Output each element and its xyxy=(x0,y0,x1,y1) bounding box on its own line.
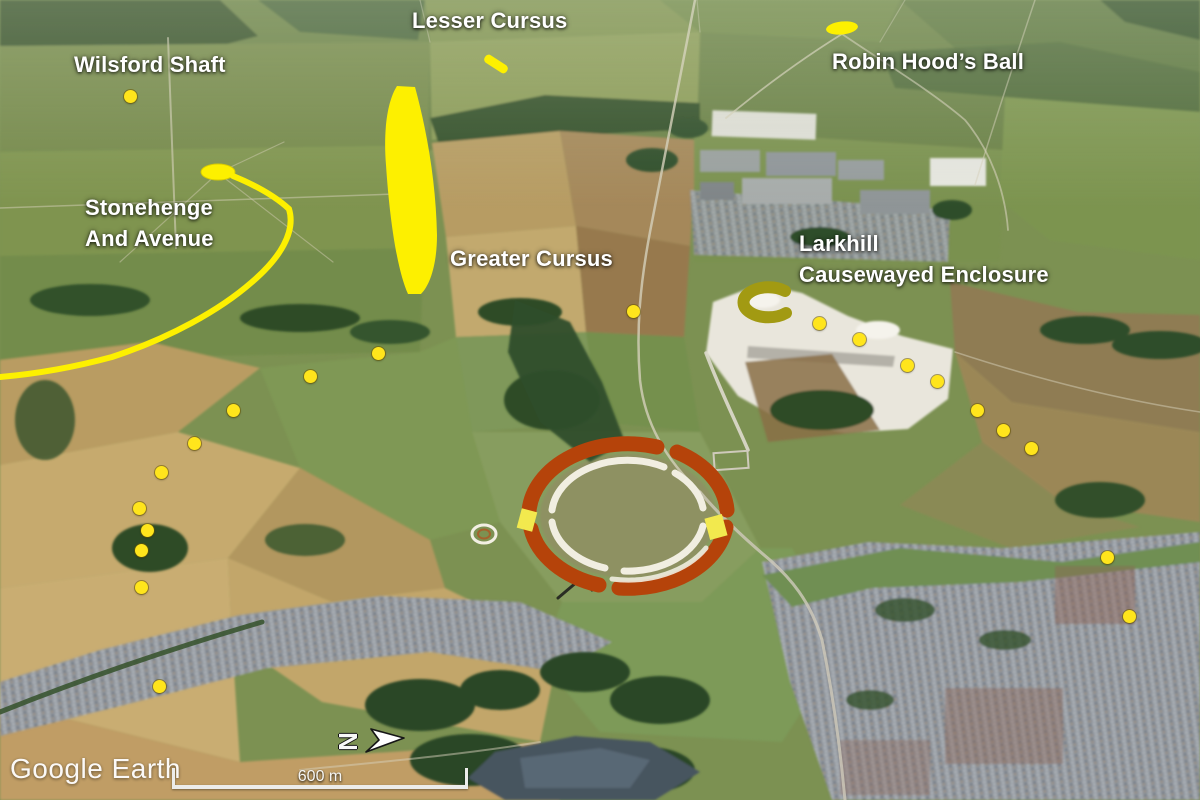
google-earth-logo: Google Earth xyxy=(10,753,181,785)
map-canvas[interactable]: .f-yellow{fill:var(--annotation-yellow);… xyxy=(0,0,1200,800)
site-marker-dot[interactable] xyxy=(627,305,640,318)
label-robin-hoods-ball: Robin Hood’s Ball xyxy=(832,46,1024,77)
site-marker-dot[interactable] xyxy=(153,680,166,693)
label-stonehenge-line2: And Avenue xyxy=(85,223,214,254)
site-marker-dot[interactable] xyxy=(188,437,201,450)
site-marker-dot[interactable] xyxy=(372,347,385,360)
site-marker-dot[interactable] xyxy=(155,466,168,479)
site-marker-dot[interactable] xyxy=(135,544,148,557)
site-marker-dot[interactable] xyxy=(997,424,1010,437)
label-larkhill-enclosure: Larkhill Causewayed Enclosure xyxy=(799,228,1049,290)
label-greater-cursus: Greater Cursus xyxy=(450,243,613,274)
label-wilsford-shaft: Wilsford Shaft xyxy=(74,49,226,80)
site-marker-dot[interactable] xyxy=(133,502,146,515)
scale-bar-label: 600 m xyxy=(175,768,465,785)
site-marker-dot[interactable] xyxy=(853,333,866,346)
site-marker-dot[interactable] xyxy=(1123,610,1136,623)
site-marker-dot[interactable] xyxy=(227,404,240,417)
label-larkhill-line1: Larkhill xyxy=(799,228,1049,259)
label-lesser-cursus: Lesser Cursus xyxy=(412,5,567,36)
site-marker-dot[interactable] xyxy=(971,404,984,417)
site-marker-dot[interactable] xyxy=(124,90,137,103)
site-marker-dot[interactable] xyxy=(901,359,914,372)
label-stonehenge-line1: Stonehenge xyxy=(85,192,214,223)
site-marker-dot[interactable] xyxy=(1025,442,1038,455)
site-marker-dot[interactable] xyxy=(304,370,317,383)
site-marker-dot[interactable] xyxy=(813,317,826,330)
site-marker-dot[interactable] xyxy=(141,524,154,537)
scale-bar: 600 m xyxy=(172,768,468,789)
north-arrow-icon xyxy=(364,728,416,754)
site-marker-dot[interactable] xyxy=(1101,551,1114,564)
north-letter: N xyxy=(332,732,363,751)
site-dots-layer xyxy=(0,0,1200,800)
label-stonehenge-avenue: Stonehenge And Avenue xyxy=(85,192,214,254)
label-larkhill-line2: Causewayed Enclosure xyxy=(799,259,1049,290)
north-arrow[interactable]: N xyxy=(338,724,418,758)
site-marker-dot[interactable] xyxy=(931,375,944,388)
site-marker-dot[interactable] xyxy=(135,581,148,594)
